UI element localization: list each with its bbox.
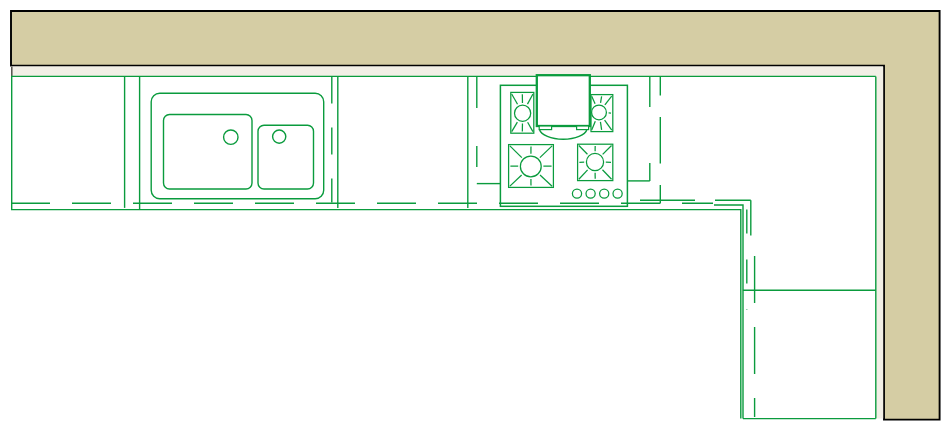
double-bowl-sink bbox=[151, 93, 324, 199]
hidden-cabinet-dashed-lines bbox=[11, 76, 755, 417]
counter-and-cabinet-lines bbox=[11, 76, 876, 418]
kitchen-floor-plan bbox=[0, 0, 952, 437]
wall-inner-face bbox=[11, 67, 883, 419]
floor-plan-viewport[interactable] bbox=[0, 0, 952, 437]
range-hood-block bbox=[537, 75, 590, 139]
